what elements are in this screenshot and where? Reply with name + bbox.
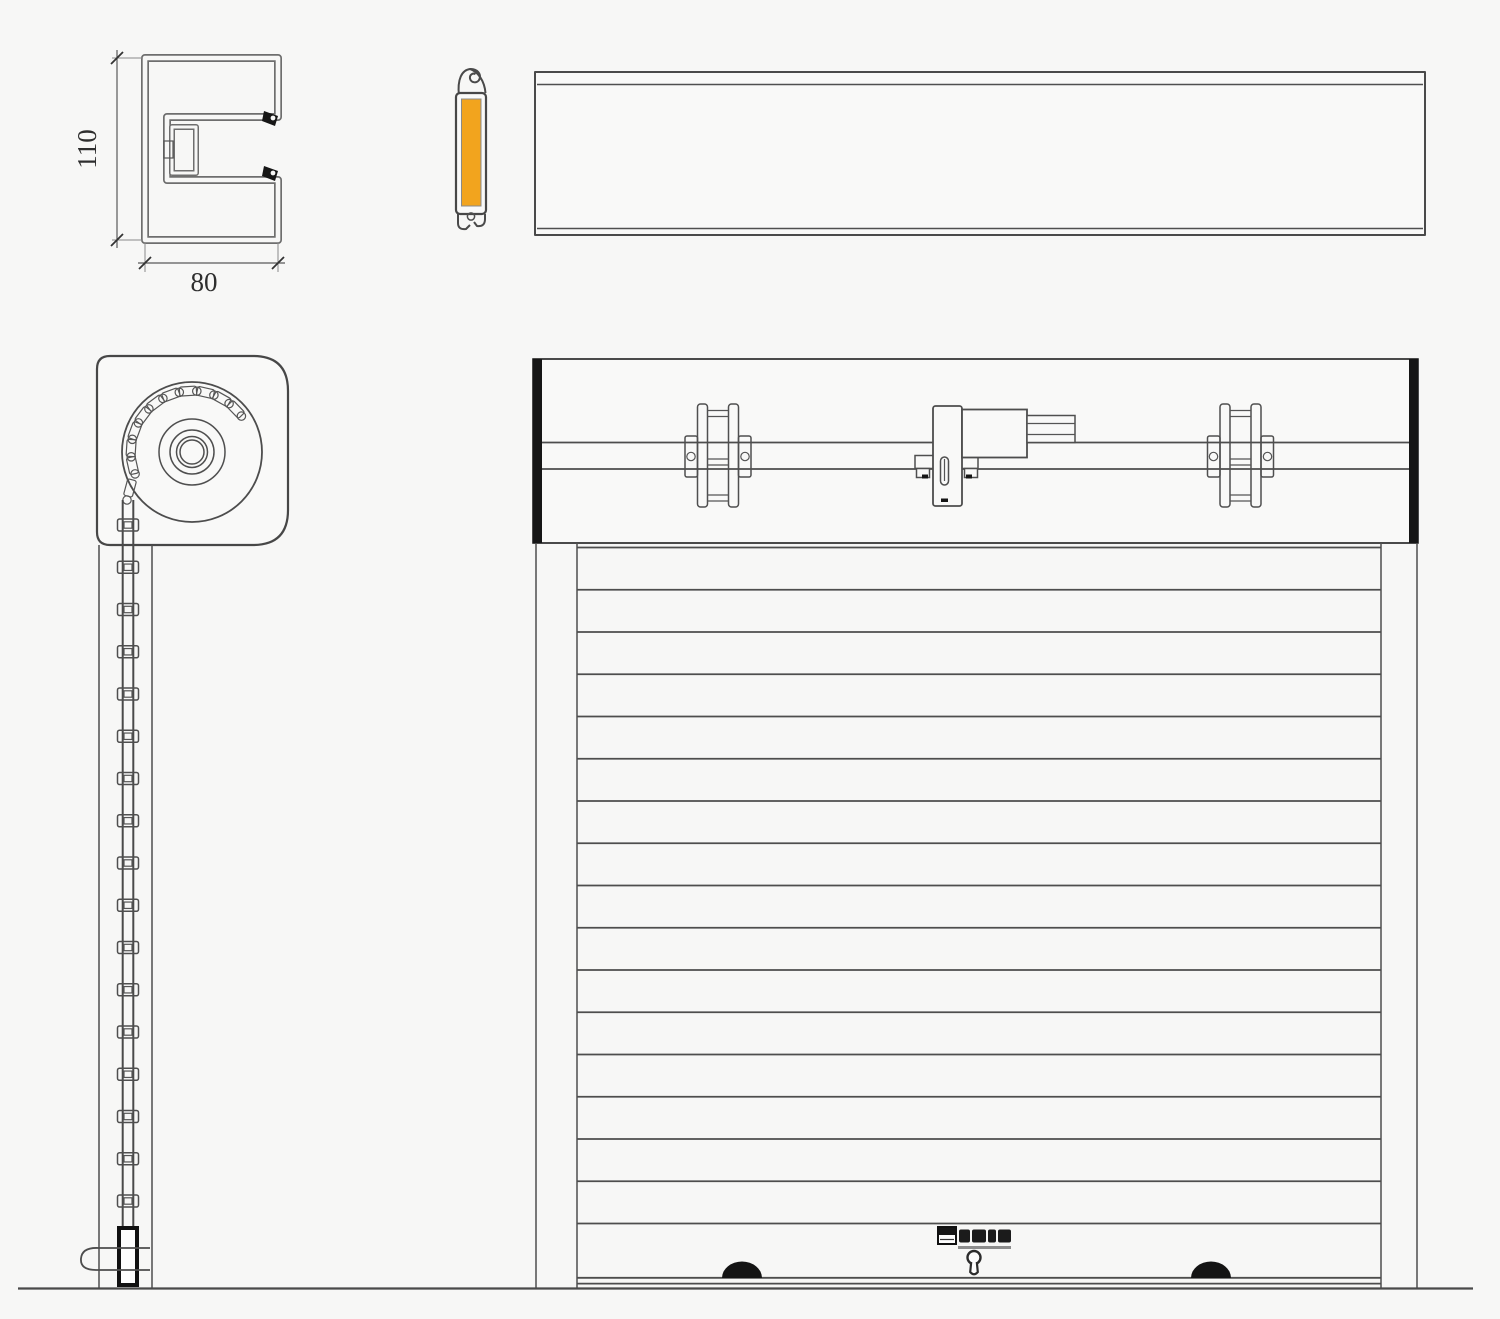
bottom-bar-side bbox=[119, 1228, 137, 1285]
logo-tagline bbox=[958, 1246, 1011, 1249]
slat-cross-section bbox=[456, 69, 486, 229]
curtain-joint bbox=[118, 1068, 139, 1080]
curtain-joint bbox=[118, 1195, 139, 1207]
curtain-joint-inner bbox=[124, 733, 132, 739]
rail-insert-outline bbox=[172, 127, 196, 173]
curtain-joint-inner bbox=[124, 691, 132, 697]
curtain-joint bbox=[118, 857, 139, 869]
curtain-joint-inner bbox=[124, 1071, 132, 1077]
curtain-joint-inner bbox=[124, 818, 132, 824]
curtain-slat-lines bbox=[577, 548, 1381, 1224]
rail-height-dimension: 110 bbox=[72, 129, 102, 169]
handle-dome-right-icon bbox=[1191, 1262, 1231, 1279]
technical-drawing-roller-shutter: 110 80 bbox=[0, 0, 1500, 1319]
guide-rail-cross-section: 110 80 bbox=[72, 50, 285, 297]
curtain-joint bbox=[118, 730, 139, 742]
slat-elevation-outline bbox=[535, 72, 1425, 235]
curtain-joint-inner bbox=[124, 564, 132, 570]
foot-nub-right bbox=[966, 475, 972, 479]
curtain-joint bbox=[118, 942, 139, 954]
endplate-right bbox=[1409, 359, 1418, 543]
brush-seal-bottom-dot bbox=[271, 171, 276, 176]
logo-letterblock-4 bbox=[998, 1230, 1011, 1243]
brand-logo bbox=[938, 1227, 1011, 1249]
rail-width-dimension: 80 bbox=[191, 267, 218, 297]
drawing-canvas: 110 80 bbox=[0, 0, 1500, 1319]
curtain-joint bbox=[118, 688, 139, 700]
slat-bottom-hook-left bbox=[458, 214, 470, 229]
roll-box-outline bbox=[97, 356, 288, 545]
curtain-joint bbox=[118, 899, 139, 911]
curtain-joint bbox=[118, 561, 139, 573]
curtain-joint bbox=[118, 1111, 139, 1123]
curtain-joint-inner bbox=[124, 902, 132, 908]
curtain-joint-inner bbox=[124, 987, 132, 993]
motor-body bbox=[962, 410, 1027, 458]
rail-height-dimension-group: 110 bbox=[72, 50, 143, 248]
curtain-joint-inner bbox=[124, 775, 132, 781]
rail-width-dimension-group: 80 bbox=[138, 243, 285, 297]
curtain-joint bbox=[118, 1026, 139, 1038]
shutter-side-view bbox=[81, 356, 288, 1288]
rail-insert-core bbox=[172, 127, 196, 173]
curtain-joint-inner bbox=[124, 606, 132, 612]
logo-shutter-icon-bar bbox=[939, 1228, 955, 1235]
keyhole-icon bbox=[968, 1251, 981, 1274]
curtain-joint-inner bbox=[124, 1198, 132, 1204]
rail-profile-core bbox=[145, 58, 278, 240]
curtain-joint-inner bbox=[124, 649, 132, 655]
curtain-joint bbox=[118, 773, 139, 785]
brush-seal-top-dot bbox=[271, 116, 276, 121]
shutter-front-view bbox=[533, 359, 1418, 1288]
motor-bracket-plate bbox=[933, 406, 962, 506]
curtain-joint-inner bbox=[124, 944, 132, 950]
curtain-joint-inner bbox=[124, 1029, 132, 1035]
curtain-joint bbox=[118, 984, 139, 996]
curtain-joint bbox=[118, 604, 139, 616]
bracket-mark bbox=[941, 499, 948, 503]
slat-bottom-hook-right bbox=[474, 214, 485, 226]
motor-shaft bbox=[1027, 416, 1075, 443]
side-curtain bbox=[118, 500, 139, 1228]
endplate-left bbox=[533, 359, 542, 543]
foot-nub-left bbox=[922, 475, 928, 479]
slat-front-elevation bbox=[535, 72, 1425, 235]
curtain-joint bbox=[118, 815, 139, 827]
curtain-joint-inner bbox=[124, 1113, 132, 1119]
slat-insulation-core bbox=[462, 99, 482, 206]
handle-dome-left-icon bbox=[722, 1262, 762, 1279]
logo-letterblock-1 bbox=[959, 1230, 970, 1243]
curtain-joint-inner bbox=[124, 860, 132, 866]
curtain-joint bbox=[118, 1153, 139, 1165]
logo-letterblock-2 bbox=[972, 1230, 986, 1243]
logo-letterblock-3 bbox=[988, 1230, 996, 1243]
curtain-joint-inner bbox=[124, 1156, 132, 1162]
pull-hook-handle bbox=[81, 1248, 150, 1270]
curtain-joint bbox=[118, 646, 139, 658]
